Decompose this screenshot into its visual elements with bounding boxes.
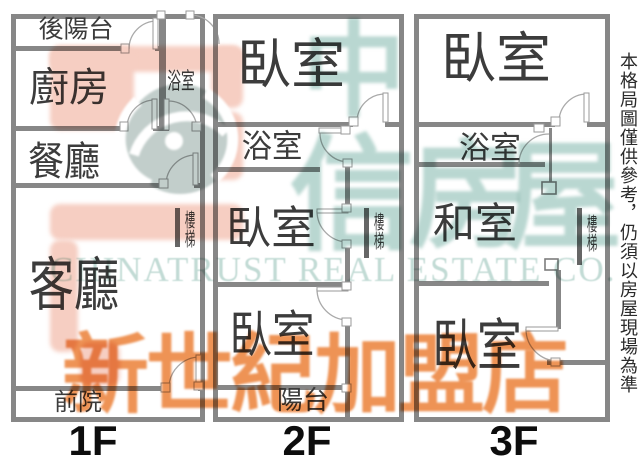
door-jamb bbox=[120, 122, 128, 131]
door-jamb bbox=[186, 11, 194, 19]
room-label-balcony: 陽台 bbox=[277, 388, 329, 414]
wall bbox=[587, 122, 610, 127]
door-swing-arc bbox=[357, 94, 385, 122]
stair-bar bbox=[577, 208, 582, 265]
disclaimer-vertical-text: 本格局圖僅供參考，仍須以房屋現場為準 bbox=[617, 52, 637, 418]
door-leaf bbox=[383, 93, 388, 122]
door-jamb bbox=[551, 358, 560, 366]
room-label-bedroom-1: 臥室 bbox=[441, 32, 551, 87]
wall bbox=[213, 167, 320, 172]
wall bbox=[11, 126, 124, 131]
door-jamb bbox=[342, 318, 351, 326]
door-jamb bbox=[192, 122, 201, 131]
room-label-bedroom-1: 臥室 bbox=[237, 38, 345, 92]
wall bbox=[414, 14, 419, 422]
door-leaf bbox=[152, 99, 157, 129]
room-label-stairs: 樓梯 bbox=[184, 210, 194, 248]
stair-bar bbox=[175, 208, 180, 247]
door-jamb bbox=[343, 159, 352, 167]
post bbox=[545, 259, 558, 270]
door-swing-arc bbox=[317, 211, 347, 242]
room-label-bedroom-2: 臥室 bbox=[432, 319, 522, 375]
door-jamb bbox=[342, 282, 351, 290]
door-leaf bbox=[193, 153, 198, 185]
door-jamb bbox=[551, 117, 560, 126]
room-label-back-balcony: 後陽台 bbox=[38, 18, 113, 43]
door-leaf bbox=[164, 99, 169, 130]
stair-bar bbox=[364, 208, 369, 258]
room-label-living-room: 客廳 bbox=[29, 257, 119, 315]
door-jamb bbox=[342, 384, 351, 392]
room-label-stairs: 樓梯 bbox=[373, 212, 383, 250]
door-leaf bbox=[526, 327, 558, 331]
door-jamb bbox=[534, 124, 544, 132]
door-swing-arc bbox=[317, 289, 347, 320]
room-label-front-yard: 前院 bbox=[54, 391, 102, 415]
door-jamb bbox=[157, 11, 165, 19]
floor-label-2f: 2F bbox=[282, 420, 331, 460]
door-jamb bbox=[161, 383, 170, 392]
room-label-bathroom: 浴室 bbox=[459, 133, 521, 164]
door-leaf bbox=[153, 18, 158, 49]
wall bbox=[218, 282, 349, 287]
floor-label-3f: 3F bbox=[489, 420, 538, 460]
wall bbox=[213, 14, 404, 19]
door-jamb bbox=[342, 204, 351, 212]
wall bbox=[414, 281, 549, 286]
door-jamb bbox=[159, 179, 168, 188]
door-swing-arc bbox=[166, 155, 196, 185]
room-label-washitsu: 和室 bbox=[433, 204, 517, 246]
floor-label-1f: 1F bbox=[68, 420, 117, 460]
wall bbox=[11, 46, 128, 51]
room-label-bathroom: 浴室 bbox=[167, 70, 195, 93]
room-label-bedroom-2: 臥室 bbox=[226, 207, 316, 252]
wall bbox=[385, 122, 404, 127]
door-swing-arc bbox=[519, 134, 549, 164]
door-swing-arc bbox=[559, 94, 587, 122]
room-label-bedroom-3: 臥室 bbox=[230, 310, 315, 360]
door-leaf bbox=[584, 93, 589, 122]
room-label-stairs: 樓梯 bbox=[586, 214, 596, 252]
post bbox=[542, 182, 556, 194]
door-swing-arc bbox=[127, 100, 155, 128]
door-swing-arc bbox=[320, 133, 349, 162]
wall bbox=[556, 270, 561, 329]
floorplan-image: 後陽台廚房浴室餐廳樓梯客廳前院1F臥室浴室臥室樓梯臥室陽台2F臥室浴室和室樓梯臥… bbox=[0, 0, 638, 460]
wall-thin bbox=[549, 128, 552, 183]
wall bbox=[414, 14, 610, 19]
wall bbox=[345, 324, 350, 417]
door-jamb bbox=[349, 117, 358, 126]
door-jamb bbox=[342, 240, 351, 248]
door-jamb bbox=[341, 126, 350, 134]
room-label-bathroom: 浴室 bbox=[242, 130, 303, 162]
wall bbox=[213, 122, 353, 127]
room-label-kitchen: 廚房 bbox=[29, 68, 109, 108]
wall bbox=[11, 14, 16, 422]
wall bbox=[213, 14, 218, 422]
room-label-dining-room: 餐廳 bbox=[28, 142, 100, 182]
wall bbox=[399, 14, 404, 422]
door-jamb bbox=[121, 44, 129, 53]
door-jamb bbox=[194, 382, 203, 390]
door-swing-arc bbox=[526, 329, 558, 361]
